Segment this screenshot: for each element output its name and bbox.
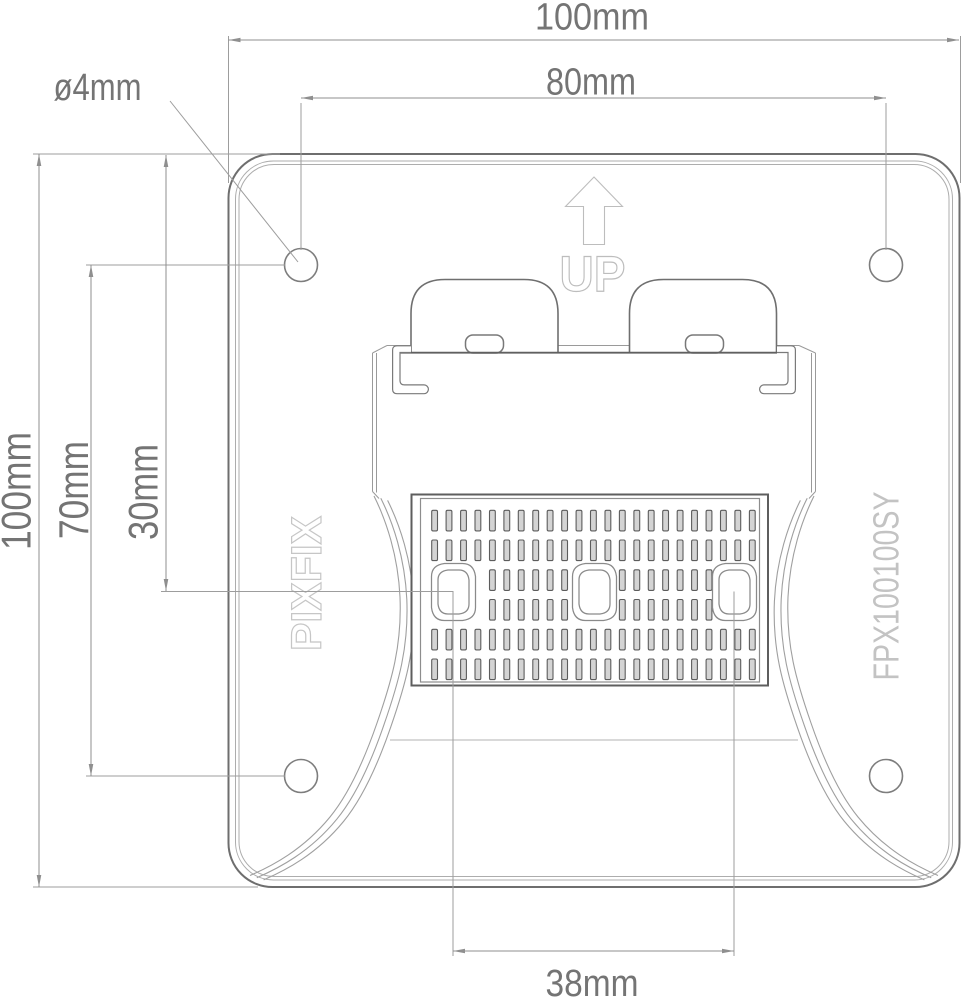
svg-text:80mm: 80mm xyxy=(546,62,636,104)
svg-text:FPX100100SY: FPX100100SY xyxy=(866,492,907,681)
svg-text:ø4mm: ø4mm xyxy=(54,67,142,109)
svg-text:38mm: 38mm xyxy=(546,963,639,1000)
svg-text:PIXFIX: PIXFIX xyxy=(283,516,331,651)
svg-text:100mm: 100mm xyxy=(535,0,649,39)
svg-text:100mm: 100mm xyxy=(0,432,40,550)
svg-text:70mm: 70mm xyxy=(50,441,97,539)
svg-text:30mm: 30mm xyxy=(120,444,167,540)
svg-text:UP: UP xyxy=(560,246,626,302)
